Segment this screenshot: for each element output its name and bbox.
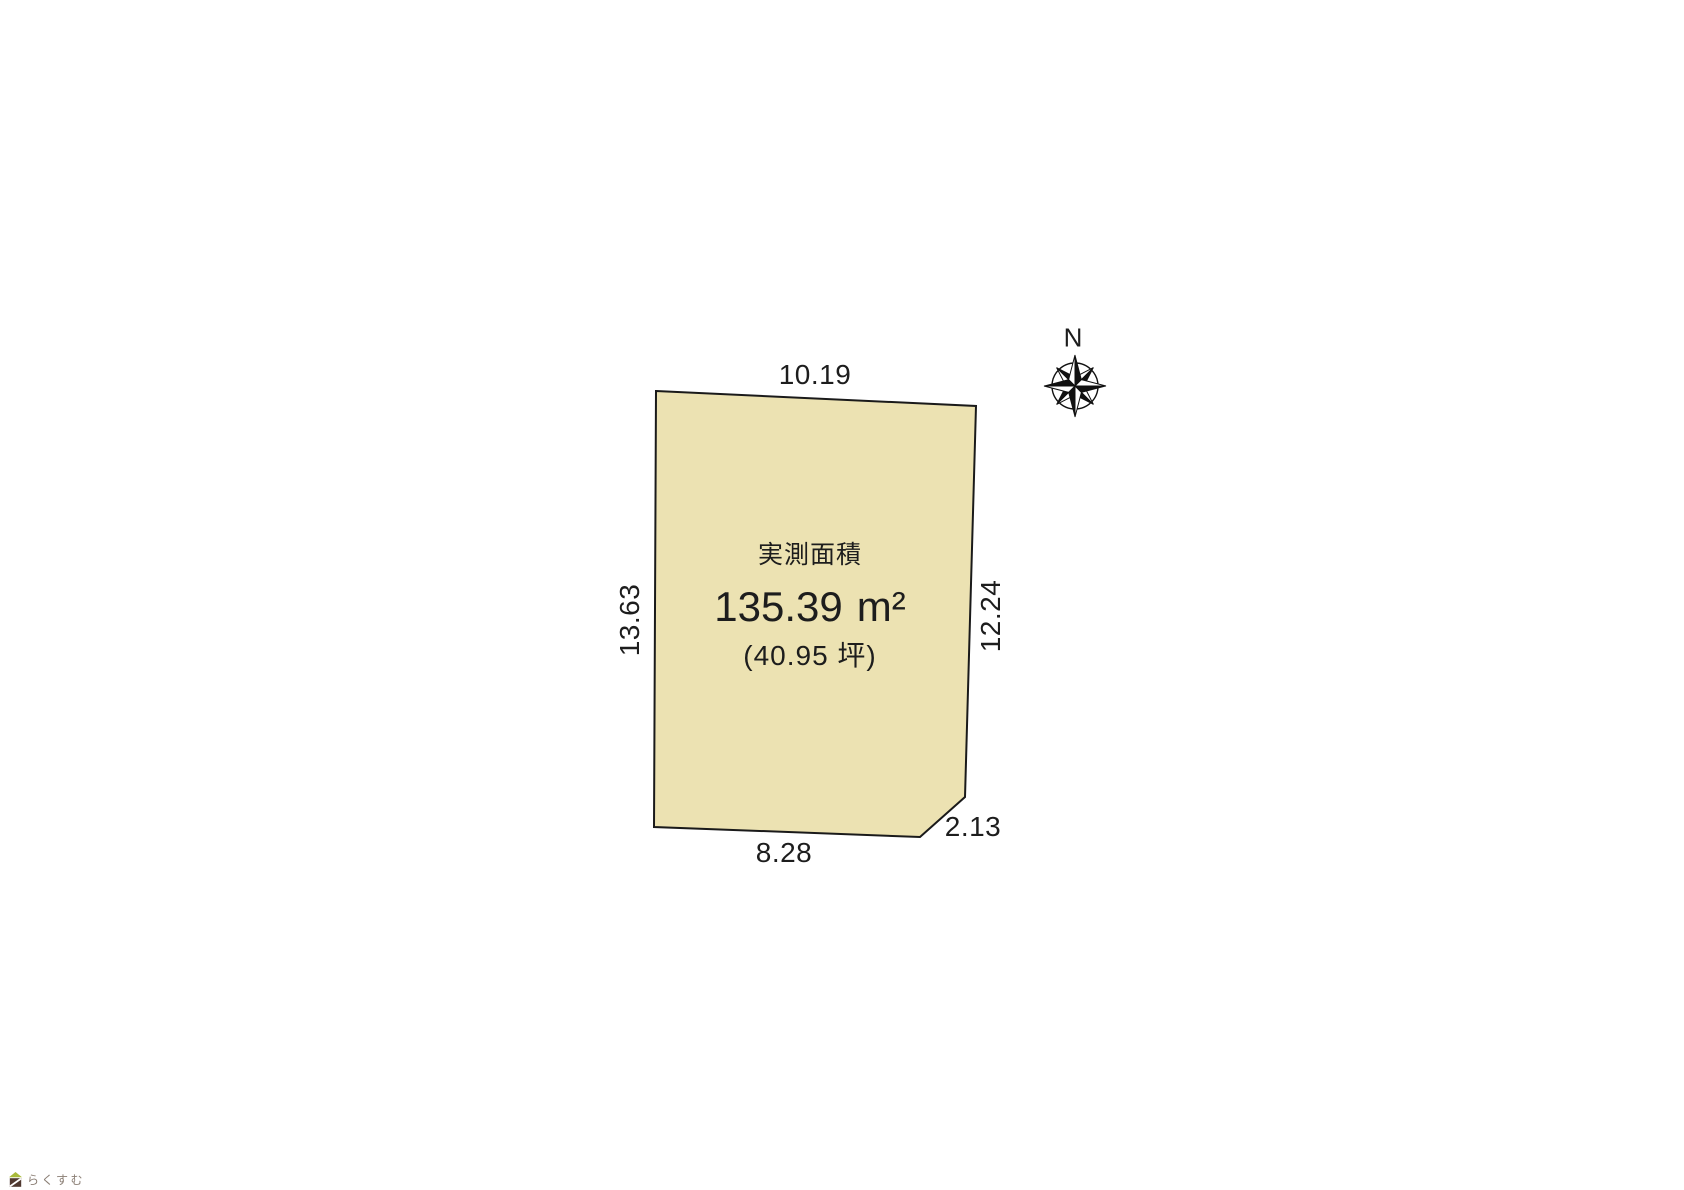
dimension-corner: 2.13	[945, 811, 1002, 843]
dimension-right: 12.24	[975, 580, 1007, 653]
dimension-top: 10.19	[779, 359, 852, 391]
compass-north-label: N	[1064, 323, 1083, 354]
area-value: 135.39	[714, 583, 842, 631]
area-title: 実測面積	[758, 535, 862, 571]
dimension-bottom: 8.28	[756, 837, 813, 869]
house-icon	[9, 1172, 22, 1187]
area-tsubo: (40.95 坪)	[743, 634, 877, 674]
dimension-left: 13.63	[614, 584, 646, 657]
area-unit: m²	[857, 583, 906, 631]
compass-rose-icon	[1040, 351, 1110, 421]
brand-logo-text: らくすむ	[27, 1171, 85, 1188]
brand-logo: らくすむ	[9, 1171, 85, 1188]
area-value-row: 135.39m²	[714, 583, 905, 631]
